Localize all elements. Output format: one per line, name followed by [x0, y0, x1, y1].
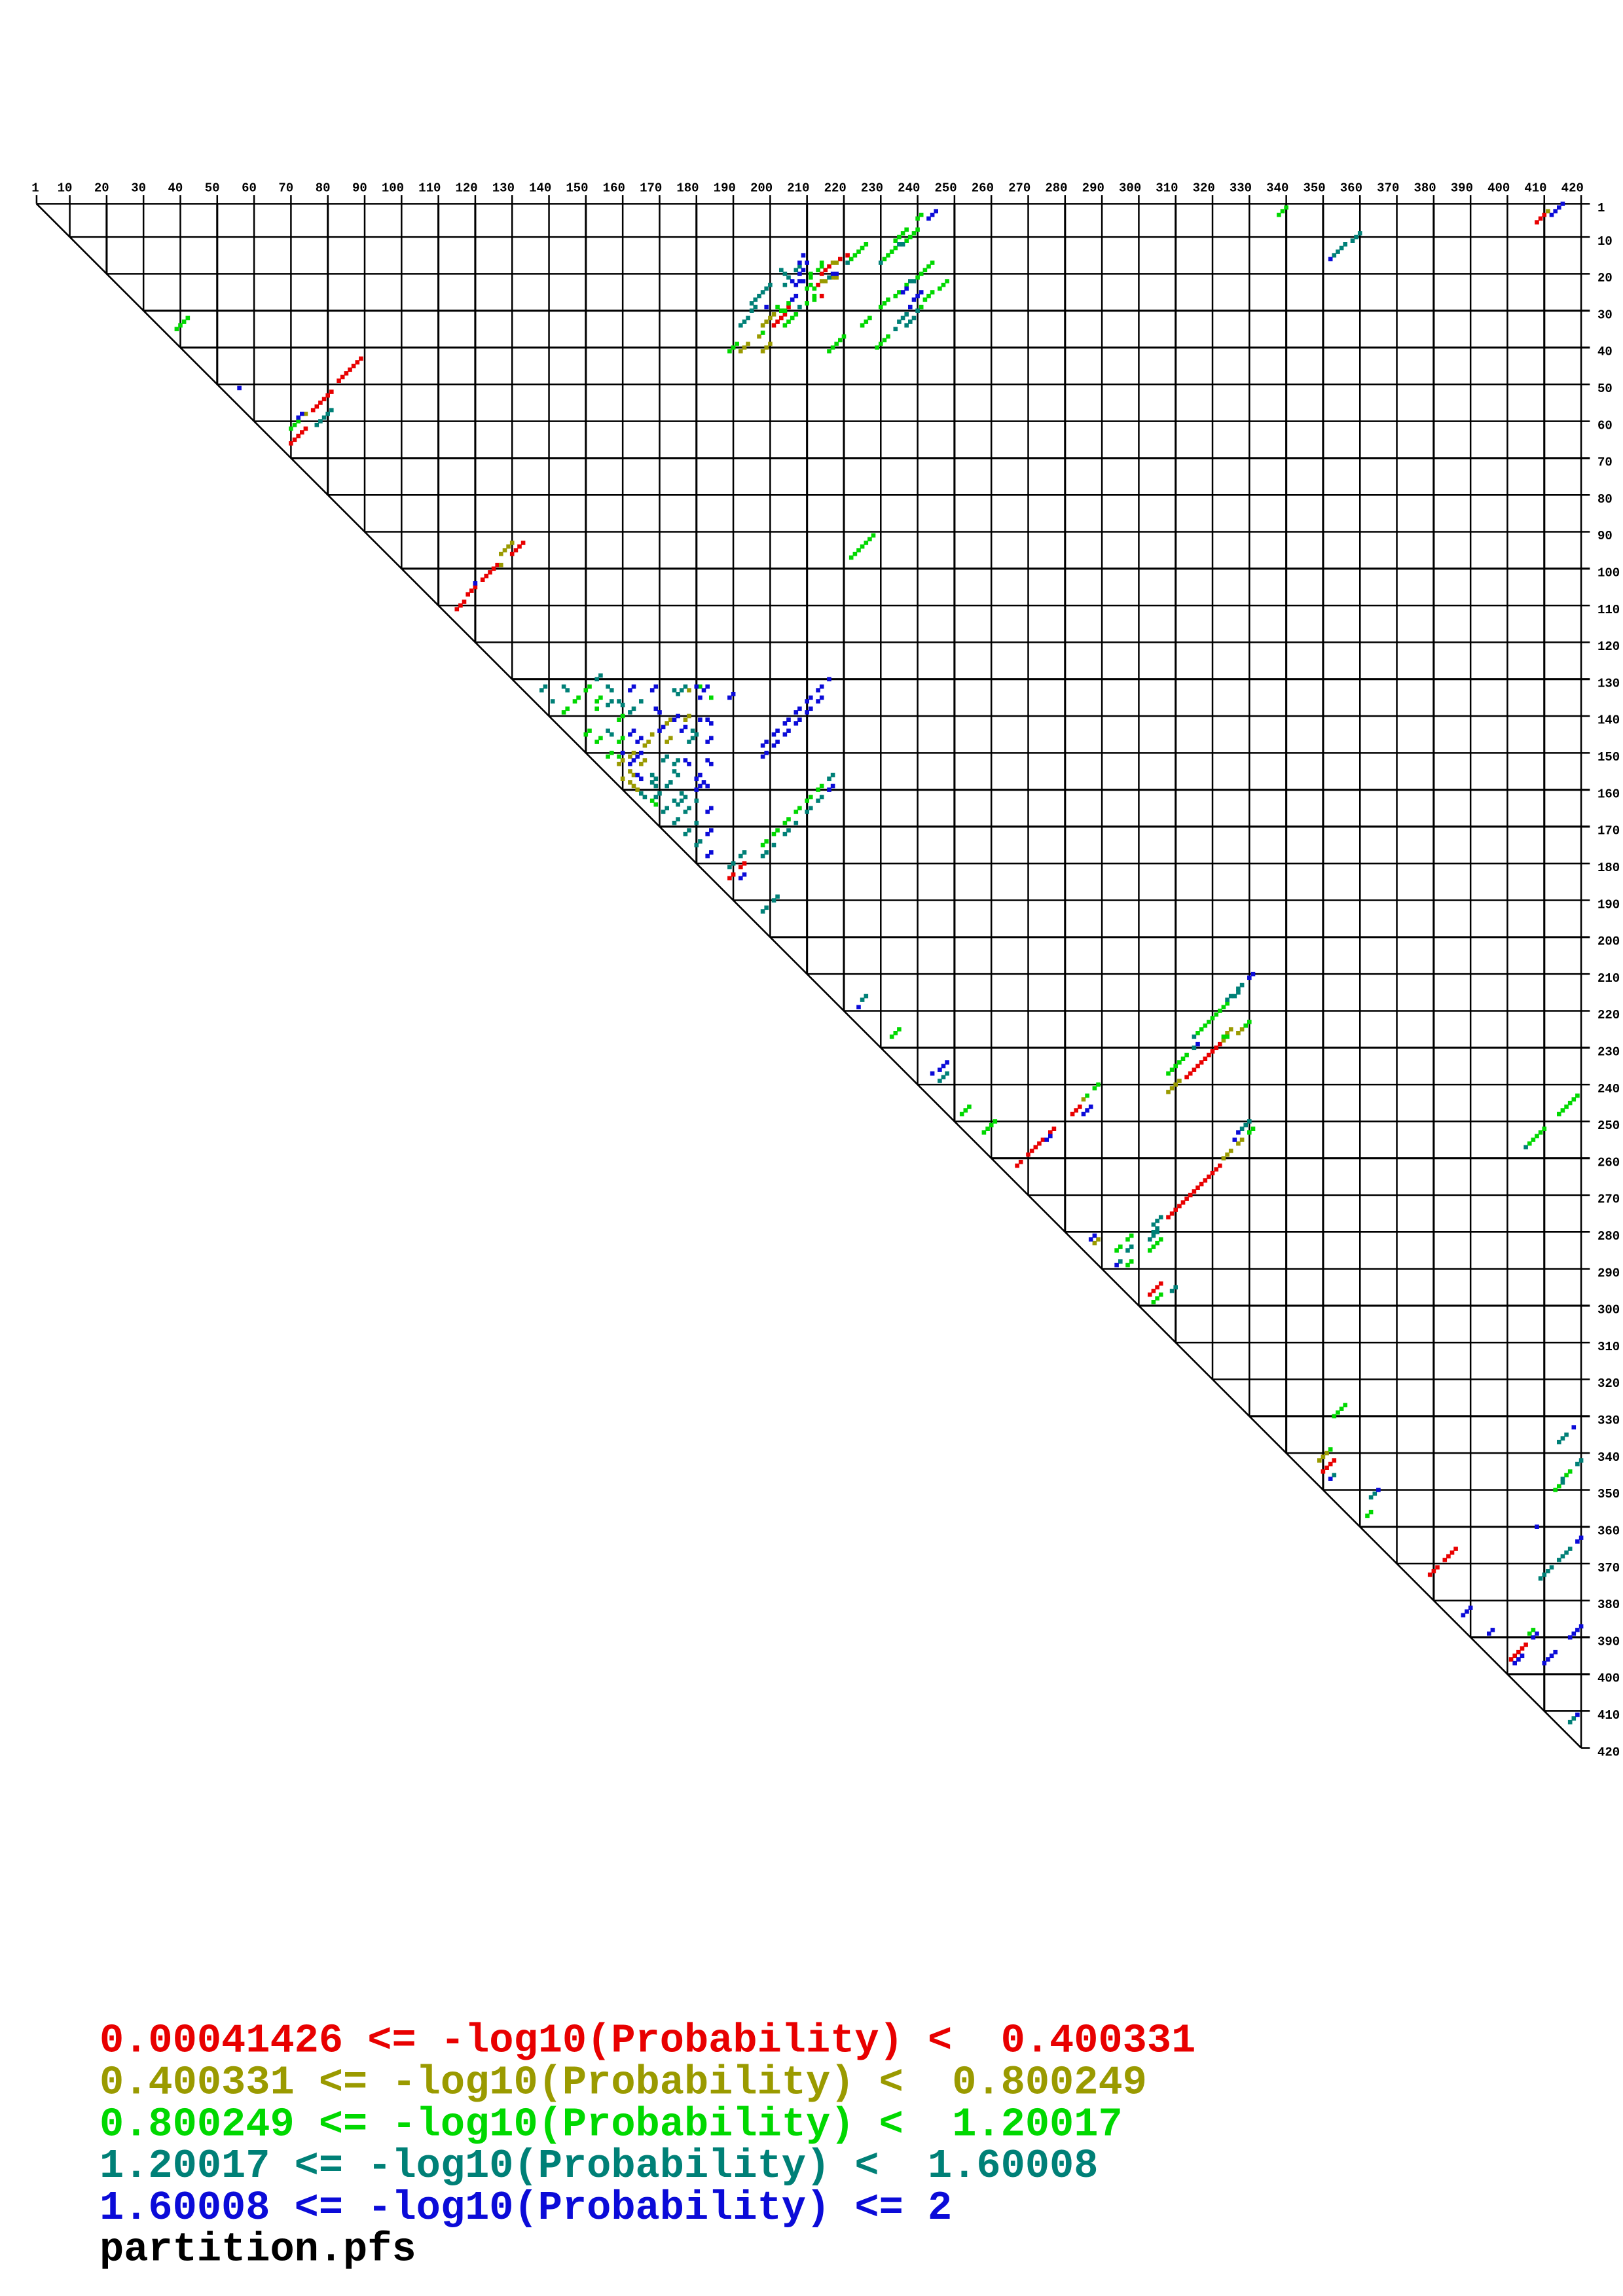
- svg-text:80: 80: [1597, 492, 1613, 507]
- svg-text:280: 280: [1597, 1229, 1620, 1244]
- svg-text:1: 1: [31, 181, 39, 196]
- svg-text:0.00041426 <= -log10(Probabili: 0.00041426 <= -log10(Probability) < 0.40…: [100, 2018, 1195, 2064]
- svg-text:10: 10: [58, 181, 73, 196]
- svg-text:170: 170: [640, 181, 662, 196]
- svg-text:240: 240: [898, 181, 920, 196]
- svg-text:50: 50: [205, 181, 220, 196]
- svg-text:40: 40: [1597, 345, 1613, 359]
- svg-text:150: 150: [566, 181, 588, 196]
- svg-text:270: 270: [1008, 181, 1030, 196]
- svg-text:160: 160: [1597, 787, 1620, 801]
- svg-text:230: 230: [1597, 1045, 1620, 1060]
- svg-text:370: 370: [1377, 181, 1399, 196]
- svg-text:120: 120: [455, 181, 477, 196]
- svg-text:370: 370: [1597, 1561, 1620, 1575]
- svg-text:60: 60: [1597, 418, 1613, 433]
- svg-text:30: 30: [131, 181, 146, 196]
- svg-text:290: 290: [1082, 181, 1104, 196]
- svg-text:0.800249 <= -log10(Probability: 0.800249 <= -log10(Probability) < 1.2001…: [100, 2101, 1123, 2147]
- svg-text:70: 70: [278, 181, 293, 196]
- svg-text:150: 150: [1597, 750, 1620, 764]
- svg-text:1.20017 <= -log10(Probability): 1.20017 <= -log10(Probability) < 1.60008: [100, 2143, 1098, 2189]
- svg-text:310: 310: [1597, 1340, 1620, 1354]
- svg-text:160: 160: [603, 181, 625, 196]
- svg-text:180: 180: [676, 181, 699, 196]
- svg-text:340: 340: [1597, 1450, 1620, 1465]
- svg-text:220: 220: [824, 181, 847, 196]
- svg-text:400: 400: [1487, 181, 1510, 196]
- svg-text:250: 250: [1597, 1119, 1620, 1133]
- svg-text:130: 130: [492, 181, 515, 196]
- svg-text:360: 360: [1340, 181, 1362, 196]
- svg-text:420: 420: [1561, 181, 1584, 196]
- svg-text:90: 90: [1597, 529, 1613, 543]
- svg-text:70: 70: [1597, 456, 1613, 470]
- svg-text:240: 240: [1597, 1082, 1620, 1096]
- svg-text:260: 260: [972, 181, 994, 196]
- svg-text:320: 320: [1597, 1376, 1620, 1391]
- svg-text:130: 130: [1597, 676, 1620, 691]
- svg-text:50: 50: [1597, 382, 1613, 396]
- svg-text:80: 80: [316, 181, 331, 196]
- svg-text:320: 320: [1193, 181, 1215, 196]
- svg-text:0.400331 <= -log10(Probability: 0.400331 <= -log10(Probability) < 0.8002…: [100, 2060, 1147, 2106]
- svg-text:200: 200: [750, 181, 773, 196]
- svg-text:390: 390: [1451, 181, 1473, 196]
- svg-text:410: 410: [1597, 1708, 1620, 1723]
- svg-text:20: 20: [94, 181, 109, 196]
- svg-text:380: 380: [1413, 181, 1436, 196]
- svg-text:30: 30: [1597, 308, 1613, 322]
- svg-text:210: 210: [787, 181, 809, 196]
- svg-text:300: 300: [1119, 181, 1141, 196]
- svg-text:140: 140: [1597, 713, 1620, 728]
- svg-text:270: 270: [1597, 1193, 1620, 1207]
- svg-text:120: 120: [1597, 639, 1620, 654]
- svg-text:60: 60: [242, 181, 257, 196]
- svg-text:330: 330: [1597, 1414, 1620, 1428]
- svg-text:410: 410: [1524, 181, 1546, 196]
- svg-text:170: 170: [1597, 824, 1620, 838]
- svg-text:200: 200: [1597, 935, 1620, 949]
- svg-text:310: 310: [1156, 181, 1178, 196]
- svg-text:230: 230: [861, 181, 883, 196]
- svg-text:190: 190: [1597, 897, 1620, 912]
- svg-text:180: 180: [1597, 861, 1620, 875]
- svg-text:260: 260: [1597, 1155, 1620, 1170]
- svg-text:400: 400: [1597, 1672, 1620, 1686]
- svg-text:300: 300: [1597, 1303, 1620, 1318]
- svg-text:100: 100: [382, 181, 404, 196]
- svg-text:partition.pfs: partition.pfs: [100, 2227, 416, 2273]
- svg-text:210: 210: [1597, 971, 1620, 986]
- svg-text:110: 110: [1597, 603, 1620, 617]
- svg-text:1.60008 <= -log10(Probability): 1.60008 <= -log10(Probability) <= 2: [100, 2185, 952, 2231]
- svg-text:190: 190: [714, 181, 736, 196]
- svg-text:380: 380: [1597, 1598, 1620, 1612]
- svg-text:360: 360: [1597, 1524, 1620, 1538]
- svg-text:250: 250: [934, 181, 957, 196]
- svg-text:330: 330: [1230, 181, 1252, 196]
- svg-text:1: 1: [1597, 201, 1605, 215]
- svg-text:290: 290: [1597, 1266, 1620, 1280]
- svg-text:280: 280: [1045, 181, 1067, 196]
- svg-text:90: 90: [352, 181, 367, 196]
- svg-text:340: 340: [1266, 181, 1288, 196]
- svg-text:390: 390: [1597, 1634, 1620, 1649]
- svg-text:110: 110: [418, 181, 441, 196]
- svg-text:140: 140: [529, 181, 551, 196]
- svg-text:40: 40: [168, 181, 183, 196]
- svg-text:420: 420: [1597, 1745, 1620, 1759]
- svg-text:20: 20: [1597, 271, 1613, 285]
- svg-text:10: 10: [1597, 234, 1613, 249]
- svg-text:350: 350: [1597, 1487, 1620, 1501]
- svg-text:220: 220: [1597, 1008, 1620, 1022]
- svg-text:350: 350: [1303, 181, 1325, 196]
- svg-text:100: 100: [1597, 566, 1620, 581]
